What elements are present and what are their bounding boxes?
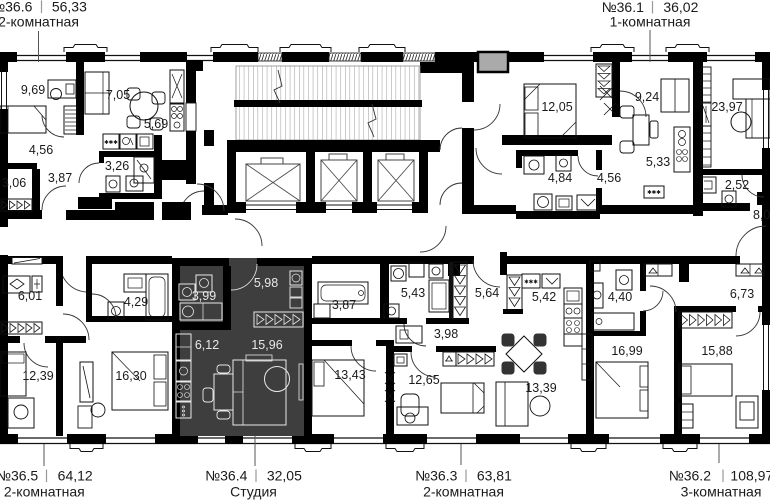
svg-text:✱✱✱: ✱✱✱: [104, 139, 118, 146]
svg-text:16,99: 16,99: [611, 344, 642, 358]
svg-text:✱✱✱: ✱✱✱: [647, 189, 661, 196]
svg-text:15,88: 15,88: [701, 344, 732, 358]
svg-text:4,29: 4,29: [124, 295, 148, 309]
svg-text:5,64: 5,64: [475, 286, 499, 300]
svg-text:3,87: 3,87: [48, 171, 72, 185]
svg-text:5,33: 5,33: [646, 155, 670, 169]
svg-text:3-комнатная: 3-комнатная: [681, 484, 762, 500]
svg-text:2-комнатная: 2-комнатная: [423, 484, 504, 500]
svg-text:✱✱✱: ✱✱✱: [524, 279, 538, 286]
svg-text:2-комнатная: 2-комнатная: [0, 14, 79, 30]
svg-text:15,96: 15,96: [251, 338, 282, 352]
svg-text:5,43: 5,43: [401, 286, 425, 300]
svg-text:6,01: 6,01: [18, 289, 42, 303]
svg-text:8,06: 8,06: [753, 208, 770, 222]
svg-text:2,52: 2,52: [725, 178, 749, 192]
svg-text:13,39: 13,39: [525, 381, 556, 395]
svg-text:№36.3 63,81: №36.3 63,81: [415, 468, 512, 484]
svg-text:5,69: 5,69: [144, 117, 168, 131]
svg-text:3,98: 3,98: [434, 327, 458, 341]
svg-text:12,39: 12,39: [22, 369, 53, 383]
svg-text:Студия: Студия: [230, 484, 277, 500]
svg-text:№36.6 56,33: №36.6 56,33: [0, 0, 87, 15]
svg-text:9,24: 9,24: [635, 90, 659, 104]
svg-text:3,06: 3,06: [2, 176, 26, 190]
svg-text:9,69: 9,69: [21, 83, 45, 97]
svg-text:№36.2 108,97: №36.2 108,97: [669, 468, 770, 484]
svg-text:3,87: 3,87: [332, 298, 356, 312]
svg-text:3,99: 3,99: [192, 289, 216, 303]
svg-text:5,98: 5,98: [254, 276, 278, 290]
svg-text:5,42: 5,42: [532, 290, 556, 304]
svg-text:12,05: 12,05: [541, 100, 572, 114]
svg-text:6,73: 6,73: [730, 287, 754, 301]
svg-text:4,40: 4,40: [608, 290, 632, 304]
svg-text:12,65: 12,65: [408, 373, 439, 387]
svg-text:16,30: 16,30: [115, 369, 146, 383]
svg-text:№36.4 32,05: №36.4 32,05: [205, 468, 302, 484]
svg-text:6,12: 6,12: [195, 338, 219, 352]
svg-text:3,26: 3,26: [105, 159, 129, 173]
svg-text:1-комнатная: 1-комнатная: [610, 14, 691, 30]
svg-text:7,05: 7,05: [106, 88, 130, 102]
svg-text:23,97: 23,97: [711, 100, 742, 114]
svg-text:4,84: 4,84: [548, 171, 572, 185]
svg-text:2-комнатная: 2-комнатная: [4, 484, 85, 500]
svg-text:4,56: 4,56: [29, 143, 53, 157]
svg-text:4,56: 4,56: [597, 171, 621, 185]
svg-text:13,43: 13,43: [334, 368, 365, 382]
